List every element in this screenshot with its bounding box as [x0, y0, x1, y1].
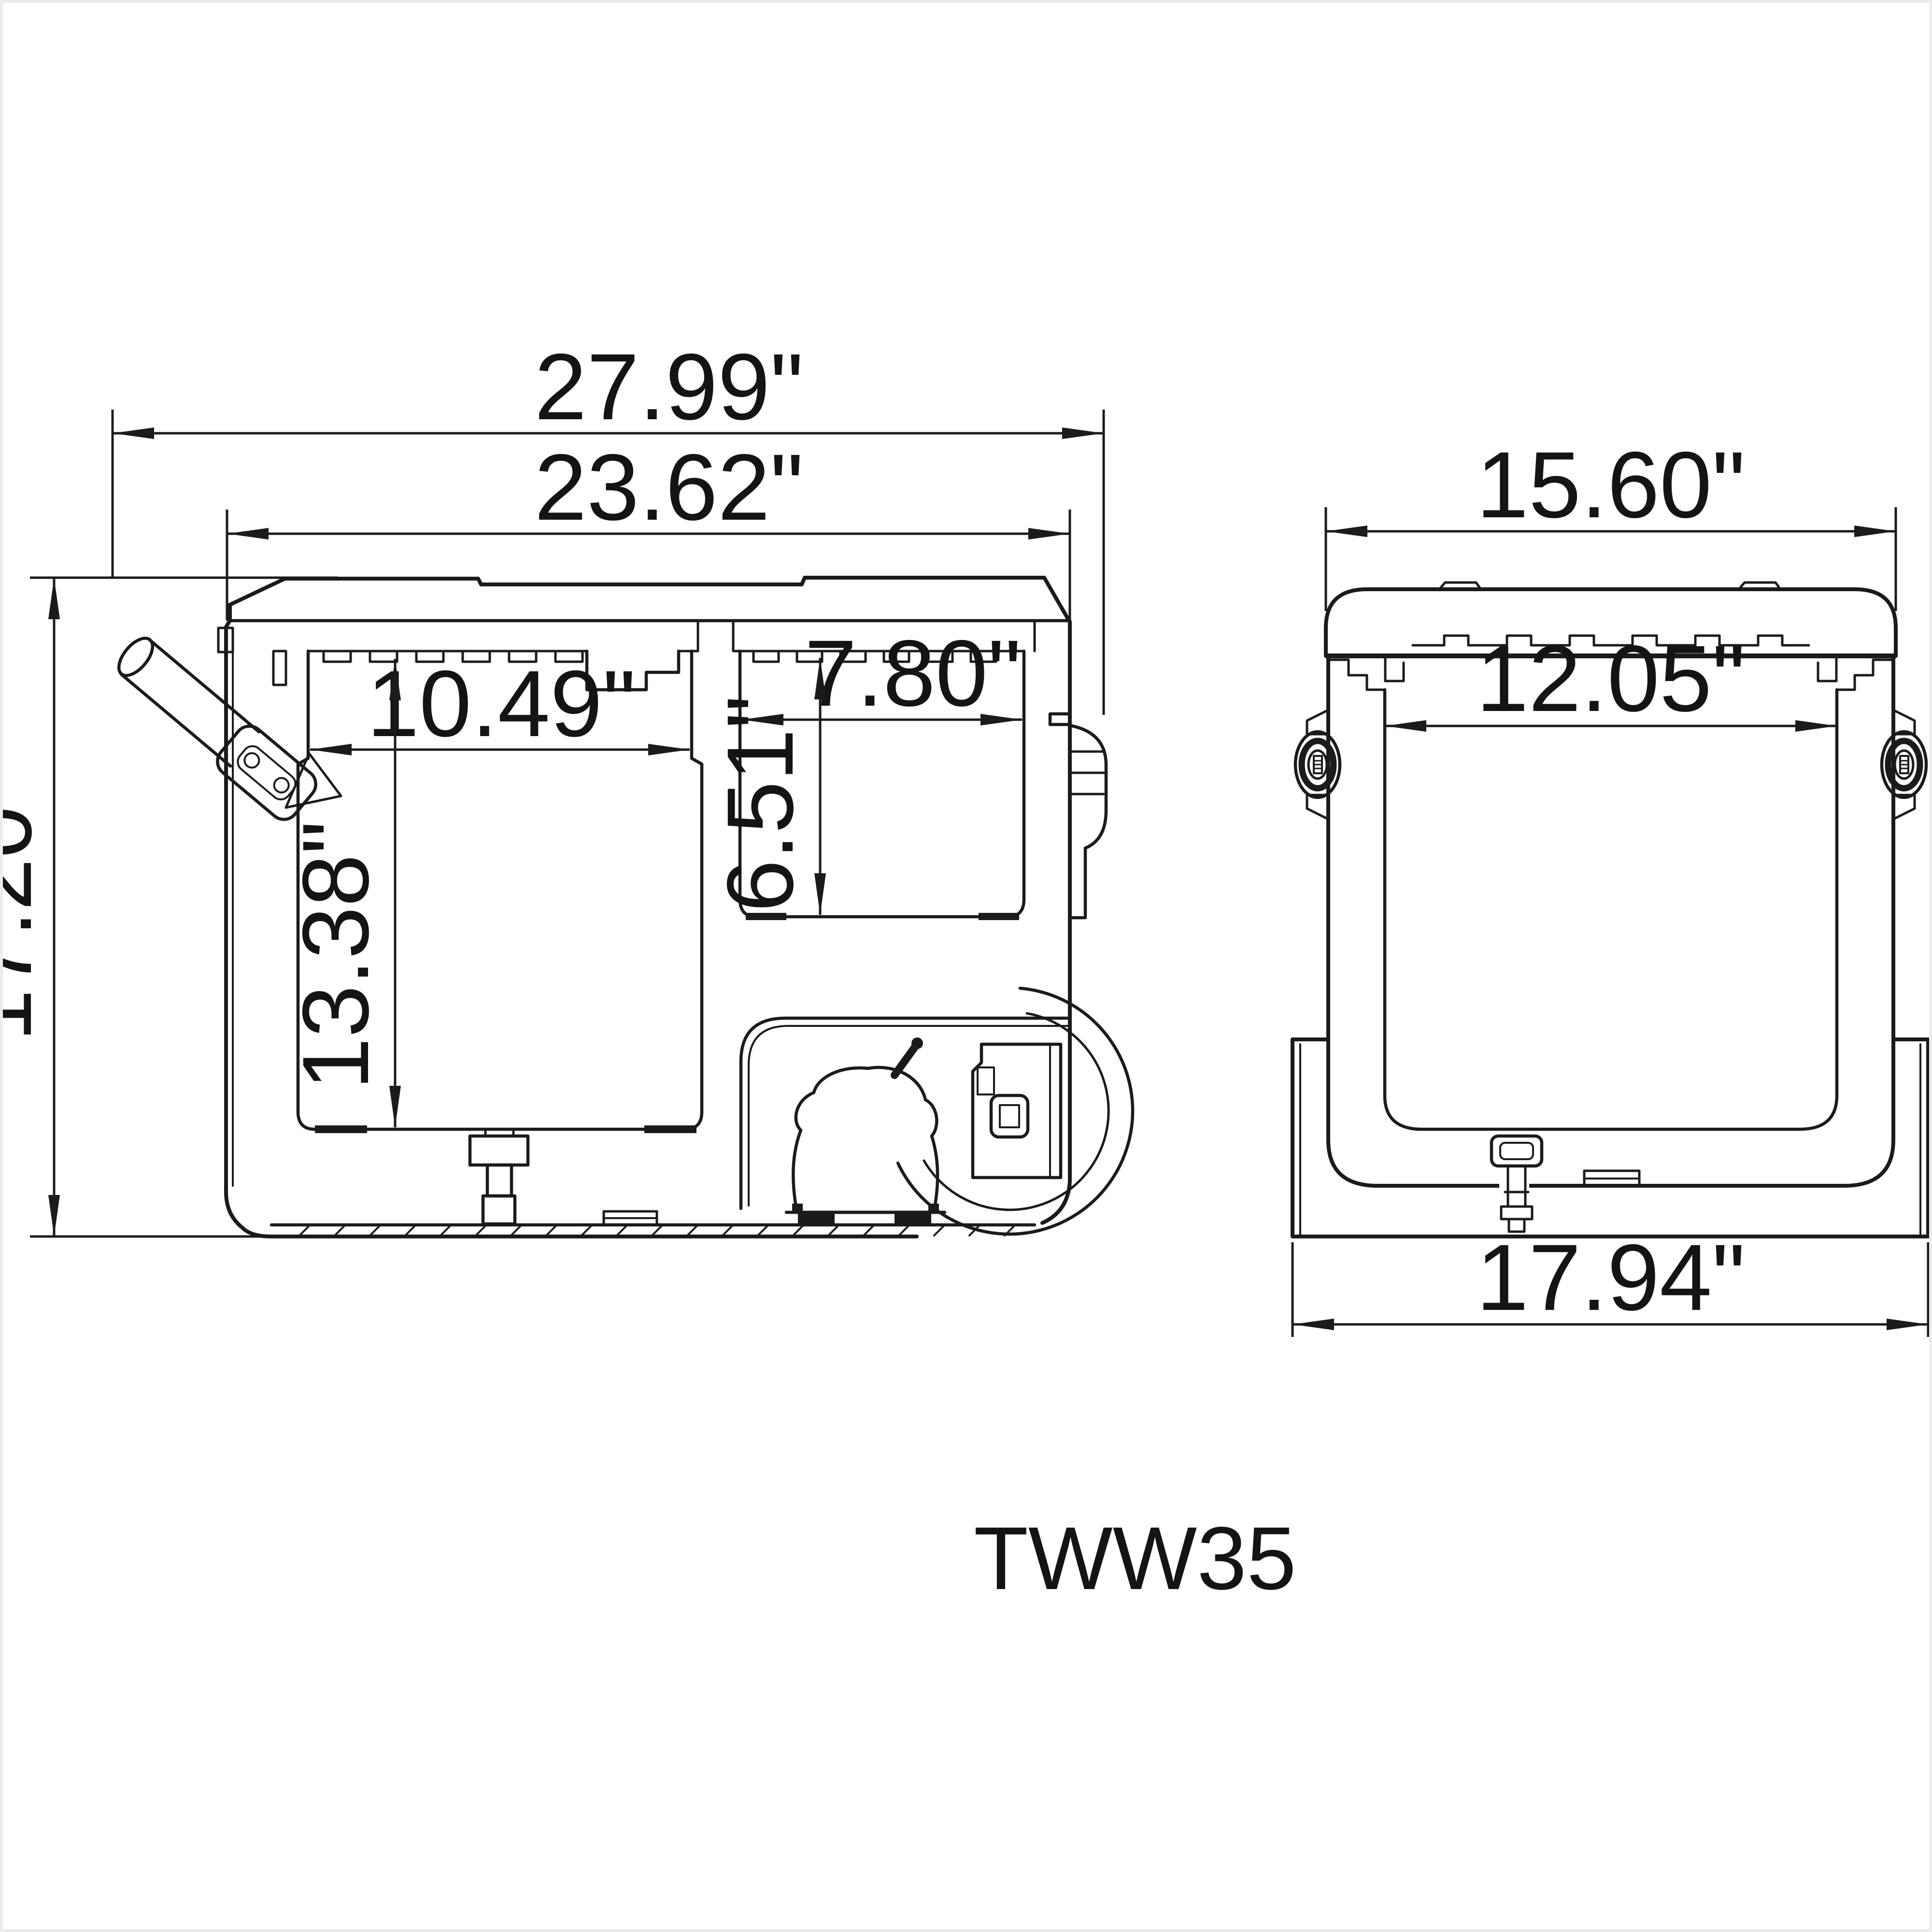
end-base	[1293, 1039, 1928, 1236]
compressor-foot	[798, 1212, 835, 1225]
dim-base-width-label: 17.94"	[1476, 1225, 1745, 1330]
drain-cap	[1492, 1136, 1542, 1166]
dim-overall-width-label: 27.99"	[534, 334, 803, 440]
handle-screw	[241, 750, 262, 770]
latch-bracket	[1050, 714, 1106, 918]
bottom-fitting-end	[1584, 1171, 1639, 1185]
handle-tube	[121, 640, 259, 766]
drain-cap-inner	[1500, 1143, 1533, 1159]
wheel-hub-inner	[1000, 1105, 1019, 1127]
technical-drawing-page: 27.99" 23.62" 17.20"	[0, 0, 1932, 1932]
dim-small-compartment-depth-label: 6.51"	[708, 696, 813, 912]
lid-top-edge	[230, 578, 1070, 622]
technical-drawing-svg: 27.99" 23.62" 17.20"	[0, 0, 1932, 1932]
dim-main-compartment-width-label: 10.49"	[367, 651, 636, 756]
handle-pivot-knob-right	[1882, 710, 1926, 819]
gasket-bar	[315, 1125, 367, 1133]
end-liner	[1385, 690, 1837, 1129]
dim-interior-width-label: 12.05"	[1476, 626, 1745, 731]
dim-base-width: 17.94"	[1293, 1225, 1928, 1337]
handle-pivot-knob-left	[1295, 710, 1340, 819]
compressor-pipe-tip	[911, 1037, 923, 1049]
compressor-foot	[895, 1212, 931, 1225]
base-outline	[1293, 1039, 1928, 1236]
electronics-box-outline	[973, 1044, 1061, 1178]
lid-left-step	[273, 651, 286, 685]
latch-hook	[1050, 714, 1070, 724]
electronics-box	[973, 1044, 1061, 1178]
dim-main-compartment-width: 10.49"	[310, 651, 690, 756]
dim-top-width-label: 15.60"	[1476, 432, 1745, 538]
dim-main-compartment-depth-label: 13.38"	[283, 821, 388, 1090]
electronics-box-detail	[978, 1067, 994, 1094]
drain-block	[483, 1196, 515, 1224]
dim-top-width: 15.60"	[1326, 432, 1896, 611]
dim-lid-width-label: 23.62"	[534, 435, 803, 540]
dim-small-compartment-width-label: 7.80"	[805, 621, 1022, 726]
bay-wall	[741, 1018, 1070, 1208]
side-view: 27.99" 23.62" 17.20"	[0, 334, 1133, 1236]
gasket-bar	[979, 913, 1019, 920]
base-inner-lines	[1300, 1044, 1920, 1235]
bottom-fitting-side	[604, 1211, 657, 1225]
compressor-clip	[792, 1204, 803, 1212]
handle-bracket	[212, 720, 322, 825]
machine-bay	[741, 1018, 1070, 1208]
handle-screw	[271, 775, 292, 796]
knob-hatch	[1901, 761, 1907, 768]
drain-cap	[470, 1136, 528, 1165]
knob-hatch	[1315, 761, 1321, 768]
dim-small-compartment-depth: 6.51"	[708, 658, 820, 915]
dim-overall-height-label: 17.20"	[0, 772, 51, 1041]
right-wall	[1042, 622, 1070, 1223]
handle-bracket-inner	[234, 742, 299, 803]
dim-interior-width: 12.05"	[1385, 626, 1837, 731]
drain-foot	[1501, 1207, 1532, 1219]
dim-lid-width: 23.62"	[227, 435, 1070, 621]
end-body	[1328, 656, 1893, 1186]
end-body-outline	[1328, 656, 1893, 1186]
end-view: 15.60" 12.05"	[1293, 432, 1928, 1337]
gasket-bar	[644, 1125, 696, 1133]
latch-body	[1070, 725, 1106, 918]
gasket-bar	[746, 913, 786, 920]
bottom-hatch	[299, 1226, 1014, 1236]
drain-plug-side	[470, 1129, 528, 1224]
handle-tube-end-cap	[113, 632, 159, 681]
handle-bracket-plate	[212, 720, 322, 825]
latch-rungs	[1071, 752, 1104, 794]
compressor-pipe	[895, 1047, 915, 1075]
wheel-hub	[991, 1095, 1028, 1137]
model-label: TWW35	[974, 1509, 1296, 1608]
drain-stem	[487, 1165, 511, 1196]
